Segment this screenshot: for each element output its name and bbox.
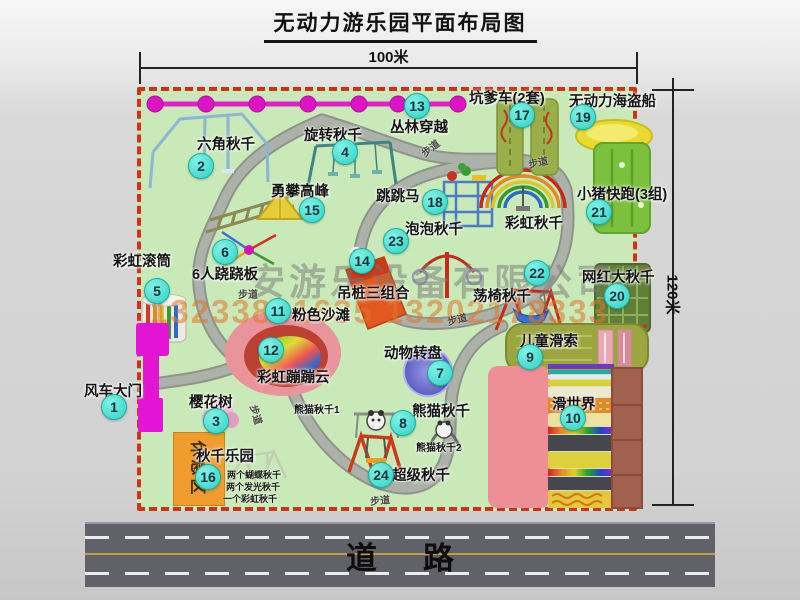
badge-10: 10	[560, 405, 586, 431]
screenshot-root: 无动力游乐园平面布局图	[0, 0, 800, 600]
swing-park-note-3: 一个彩虹秋千	[223, 492, 277, 505]
label-chair-swing: 荡椅秋千	[473, 285, 531, 306]
badge-5: 5	[144, 278, 170, 304]
badge-2: 2	[188, 153, 214, 179]
dimension-height-label: 120米	[663, 267, 684, 323]
dimension-width-label: 100米	[140, 46, 637, 67]
badge-4: 4	[332, 139, 358, 165]
badge-13: 13	[404, 93, 430, 119]
badge-18: 18	[422, 189, 448, 215]
badge-6: 6	[212, 239, 238, 265]
slide-world-drawing	[488, 364, 642, 508]
label-hanging-post-combo: 吊桩三组合	[337, 282, 410, 303]
badge-7: 7	[427, 360, 453, 386]
label-bubble-swing: 泡泡秋千	[405, 218, 463, 239]
label-panda-swing-1: 熊猫秋千1	[294, 401, 340, 416]
badge-17: 17	[509, 102, 535, 128]
label-seesaw-6p: 6人跷跷板	[192, 263, 258, 284]
badge-23: 23	[383, 228, 409, 254]
badge-12: 12	[258, 337, 284, 363]
label-panda-swing: 熊猫秋千	[412, 400, 470, 421]
label-animal-carousel: 动物转盘	[384, 342, 442, 363]
label-jungle-crossing: 丛林穿越	[390, 116, 448, 137]
label-rainbow-roller: 彩虹滚筒	[113, 250, 171, 271]
badge-9: 9	[517, 344, 543, 370]
badge-8: 8	[390, 410, 416, 436]
badge-20: 20	[604, 283, 630, 309]
trail-label-5: 步道	[369, 491, 390, 508]
label-peak-climbing: 勇攀高峰	[271, 180, 329, 201]
page-title: 无动力游乐园平面布局图	[264, 7, 537, 43]
badge-15: 15	[299, 197, 325, 223]
badge-24: 24	[368, 462, 394, 488]
badge-11: 11	[265, 298, 291, 324]
badge-21: 21	[586, 199, 612, 225]
label-hex-swing: 六角秋千	[197, 133, 255, 154]
label-swing-park: 秋千乐园	[196, 445, 254, 466]
label-rainbow-bounce-cloud: 彩虹蹦蹦云	[257, 366, 330, 387]
badge-1: 1	[101, 394, 127, 420]
badge-14: 14	[349, 248, 375, 274]
trail-label-3: 步道	[238, 286, 258, 301]
label-crazy-cart: 坑爹车(2套)	[469, 87, 545, 108]
label-rainbow-swing: 彩虹秋千	[505, 212, 563, 233]
badge-19: 19	[570, 104, 596, 130]
label-jumping-horse: 跳跳马	[376, 185, 420, 206]
label-super-swing: 超级秋千	[392, 464, 450, 485]
badge-3: 3	[203, 408, 229, 434]
badge-22: 22	[524, 260, 550, 286]
badge-16: 16	[195, 464, 221, 490]
label-panda-swing-2: 熊猫秋千2	[416, 439, 462, 454]
label-pink-beach: 粉色沙滩	[292, 304, 350, 325]
